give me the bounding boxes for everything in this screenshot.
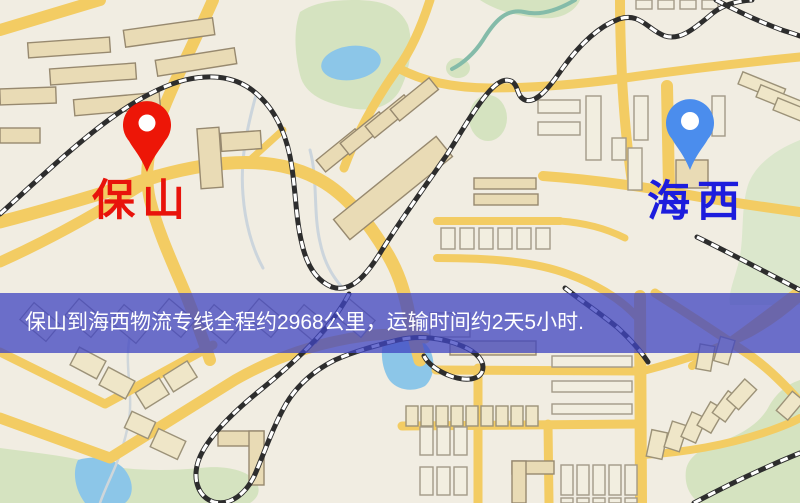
map-canvas: 保山 海西: [0, 0, 800, 503]
origin-pin-hole: [139, 115, 156, 132]
origin-pin[interactable]: [123, 101, 171, 172]
route-info-text: 保山到海西物流专线全程约2968公里，运输时间约2天5小时.: [25, 311, 584, 334]
route-info-banner: 保山到海西物流专线全程约2968公里，运输时间约2天5小时.: [0, 293, 800, 353]
logistics-route-map: 保山 海西 保山到海西物流专线全程约2968公里，运输时间约2天5小时.: [0, 0, 800, 503]
origin-pin-shape[interactable]: [123, 101, 171, 172]
destination-label: 海西: [647, 178, 747, 226]
origin-label: 保山: [92, 177, 192, 225]
destination-pin-hole: [681, 112, 699, 130]
